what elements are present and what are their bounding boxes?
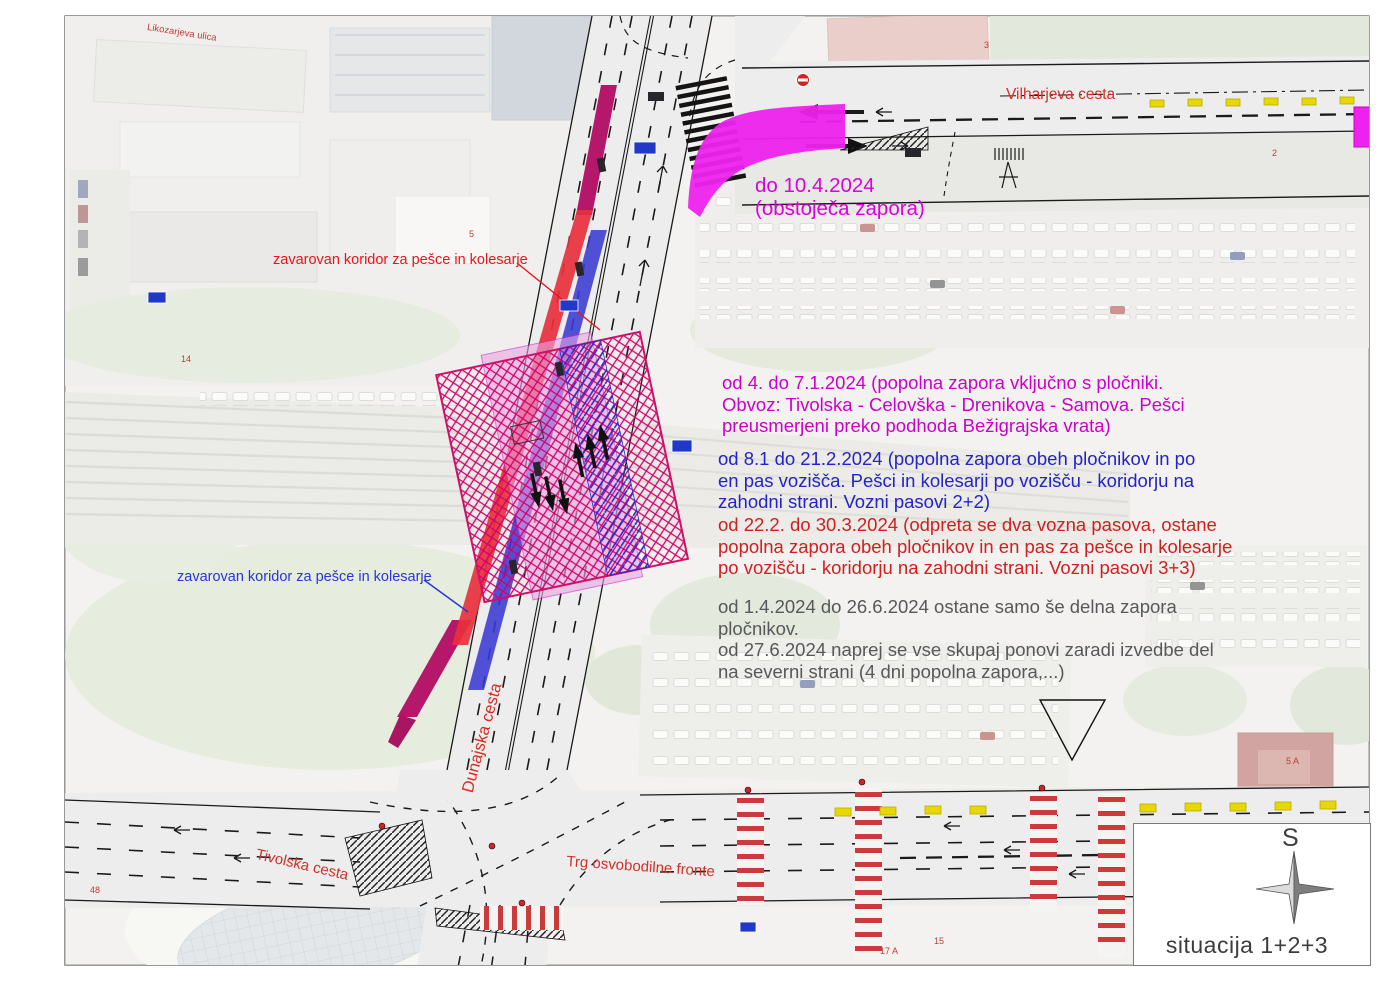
crosswalk-red-d: [1098, 793, 1125, 958]
annotation-existing-closure: do 10.4.2024 (obstoječa zapora): [755, 174, 925, 220]
parcel-number: 2: [1272, 148, 1277, 158]
crosswalk-red-b: [855, 788, 882, 960]
situational-traffic-plan: Likozarjeva ulica Vilharjeva cesta Dunaj…: [0, 0, 1384, 981]
parcel-number: 5: [469, 229, 474, 239]
parcel-number: 15: [934, 936, 944, 946]
annotation-phase4: od 1.4.2024 do 26.6.2024 ostane samo še …: [718, 596, 1214, 682]
annotation-phase1: od 4. do 7.1.2024 (popolna zapora vključ…: [722, 372, 1185, 437]
plan-title: situacija 1+2+3: [1134, 932, 1360, 959]
compass-north-letter: S: [1282, 824, 1299, 853]
parcel-number: 17 A: [880, 946, 898, 956]
parcel-number: 14: [181, 354, 191, 364]
parcel-number: 3: [984, 40, 989, 50]
crosswalk-red-a: [737, 795, 764, 905]
crosswalk-red-c: [1030, 793, 1057, 913]
parcel-number: 5 A: [1286, 756, 1299, 766]
corridor-label-blue: zavarovan koridor za pešce in kolesarje: [177, 569, 432, 585]
parcel-number: 48: [90, 885, 100, 895]
legend-box: S situacija 1+2+3: [1133, 823, 1371, 966]
annotation-phase2: od 8.1 do 21.2.2024 (popolna zapora obeh…: [718, 448, 1195, 513]
corridor-label-red: zavarovan koridor za pešce in kolesarje: [273, 252, 528, 268]
street-label-vilharjeva: Vilharjeva cesta: [1006, 86, 1115, 104]
closure-patch-right: [1354, 107, 1370, 147]
annotation-phase3: od 22.2. do 30.3.2024 (odpreta se dva vo…: [718, 514, 1232, 579]
crosswalk-red-e: [480, 906, 564, 930]
